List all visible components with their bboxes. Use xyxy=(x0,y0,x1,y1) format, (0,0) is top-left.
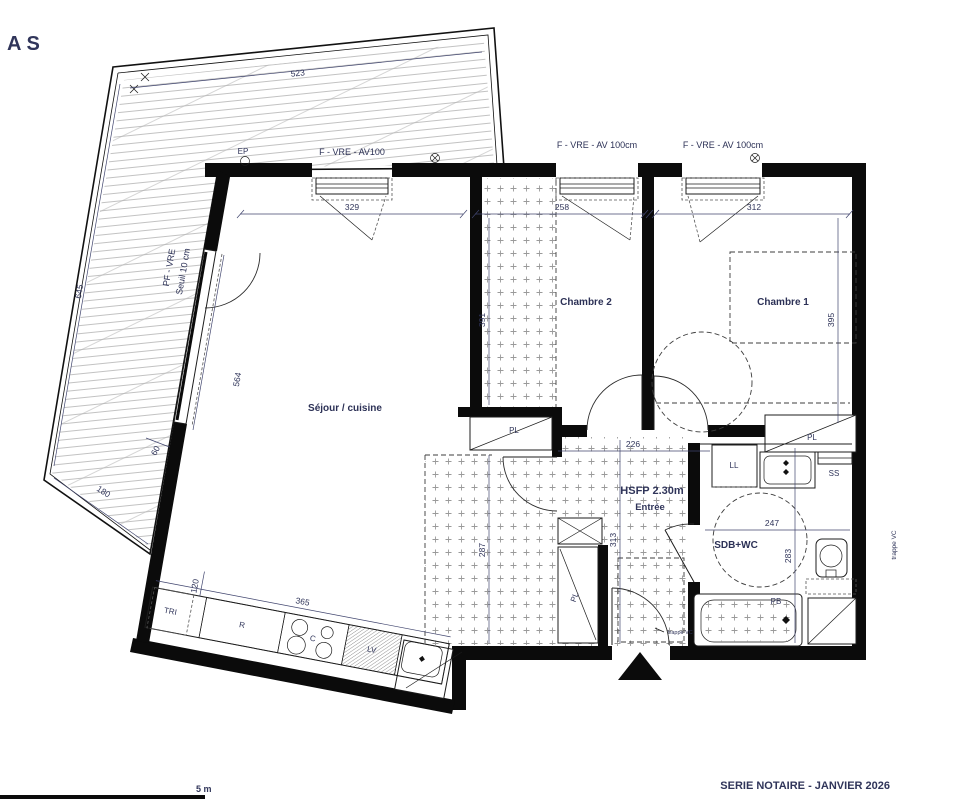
hsfp-label: HSFP 2.30m xyxy=(620,485,684,497)
scale-label: 5 m xyxy=(196,784,212,794)
dim-entree-depth: 313 xyxy=(608,533,618,547)
chambre1-annotations xyxy=(652,252,856,432)
washing-machine: LL xyxy=(712,445,757,487)
door-chambre2 xyxy=(587,375,642,430)
dim-ch1-width: 312 xyxy=(747,202,761,212)
closet-chambre2: PL xyxy=(470,417,552,450)
dim-ch2-depth: 391 xyxy=(477,313,487,327)
dim-kitchen-length: 365 xyxy=(295,595,311,608)
toilet xyxy=(816,539,847,577)
kitchen-dishwasher: LV xyxy=(341,625,402,675)
dim-kitchen-depth: 120 xyxy=(188,578,201,594)
trappe-vc-entry-label: trappe VC xyxy=(668,630,693,636)
ep-label: EP xyxy=(238,147,249,156)
kitchen-fridge: R xyxy=(199,597,285,652)
technical-shaft xyxy=(558,518,602,544)
dim-bay: 564 xyxy=(231,371,243,387)
shower-corner-unit xyxy=(806,579,856,644)
sdb-label: SDB+WC xyxy=(714,540,758,551)
towel-dryer: SS xyxy=(818,452,852,478)
floorplan-drawing: 523 645 180 60 xyxy=(0,0,967,800)
washing-machine-label: LL xyxy=(730,461,739,470)
dim-entree-width: 226 xyxy=(626,439,640,449)
scale-bar: 5 m xyxy=(0,784,212,799)
entree-label: Entrée xyxy=(635,502,665,513)
closet-chambre1: PL xyxy=(765,415,856,452)
bathtub: PB xyxy=(694,594,802,646)
vent-icon-2 xyxy=(751,154,760,163)
dim-terrace-top: 523 xyxy=(290,67,305,78)
dim-sdb-width: 247 xyxy=(765,518,779,528)
washbasin xyxy=(760,452,815,488)
window-ch1-label: F - VRE - AV 100cm xyxy=(683,140,763,150)
bathtub-label: PB xyxy=(771,597,782,606)
dim-sejour-width: 329 xyxy=(345,202,359,212)
corner-mark: AS xyxy=(7,33,45,55)
kitchen-cooktop: C xyxy=(278,612,350,664)
dim-ch1-depth: 395 xyxy=(826,313,836,327)
entrance-arrow-icon xyxy=(618,652,662,680)
sejour-label: Séjour / cuisine xyxy=(308,403,382,414)
towel-dryer-label: SS xyxy=(829,469,840,478)
trappe-vc-side-label: trappe VC xyxy=(891,530,898,560)
closet-entree: PL xyxy=(558,547,598,643)
dim-sdb-depth: 283 xyxy=(783,549,793,563)
dim-ch2-width: 258 xyxy=(555,202,569,212)
chambre1-label: Chambre 1 xyxy=(757,297,809,308)
window-sejour-label: F - VRE - AV100 xyxy=(319,147,385,157)
cooktop-label: C xyxy=(309,634,317,644)
chambre2-label: Chambre 2 xyxy=(560,297,612,308)
bathroom: LL SS PB SDB+WC xyxy=(694,444,856,646)
window-ch2-label: F - VRE - AV 100cm xyxy=(557,140,637,150)
closet-chambre1-label: PL xyxy=(807,433,817,442)
closet-chambre2-label: PL xyxy=(509,426,519,435)
floorplan-page: { "labels": { "corner_mark": "AS", "sejo… xyxy=(0,0,967,800)
dim-sejour-depth: 287 xyxy=(477,543,487,557)
footer-series-label: SERIE NOTAIRE - JANVIER 2026 xyxy=(720,780,890,792)
windows xyxy=(174,178,764,426)
tri-label: TRI xyxy=(163,606,177,617)
fridge-label: R xyxy=(238,620,246,630)
